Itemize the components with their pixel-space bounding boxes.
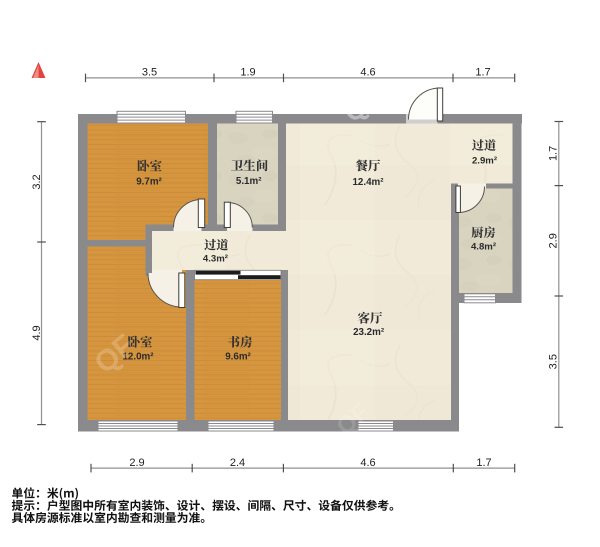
svg-text:3.5: 3.5: [142, 67, 157, 79]
svg-text:4.8m²: 4.8m²: [471, 242, 496, 253]
svg-text:9.6m²: 9.6m²: [225, 352, 251, 363]
svg-text:3.5: 3.5: [548, 354, 560, 369]
svg-text:2.9m²: 2.9m²: [472, 156, 497, 167]
svg-text:2.9: 2.9: [548, 233, 560, 248]
svg-text:5.1m²: 5.1m²: [236, 176, 262, 187]
svg-text:4.6: 4.6: [360, 67, 375, 79]
svg-text:1.7: 1.7: [476, 457, 491, 469]
svg-text:4.6: 4.6: [360, 457, 375, 469]
svg-text:2.9: 2.9: [129, 457, 144, 469]
svg-text:23.2m²: 23.2m²: [353, 327, 385, 338]
svg-text:1.7: 1.7: [475, 67, 490, 79]
svg-text:2.4: 2.4: [230, 457, 245, 469]
svg-text:4.3m²: 4.3m²: [203, 254, 228, 265]
svg-text:1.7: 1.7: [548, 146, 560, 161]
svg-text:4.9: 4.9: [31, 325, 43, 340]
svg-text:3.2: 3.2: [31, 174, 43, 189]
svg-text:9.7m²: 9.7m²: [136, 177, 162, 188]
svg-text:12.4m²: 12.4m²: [352, 177, 384, 188]
svg-text:1.9: 1.9: [240, 67, 255, 79]
